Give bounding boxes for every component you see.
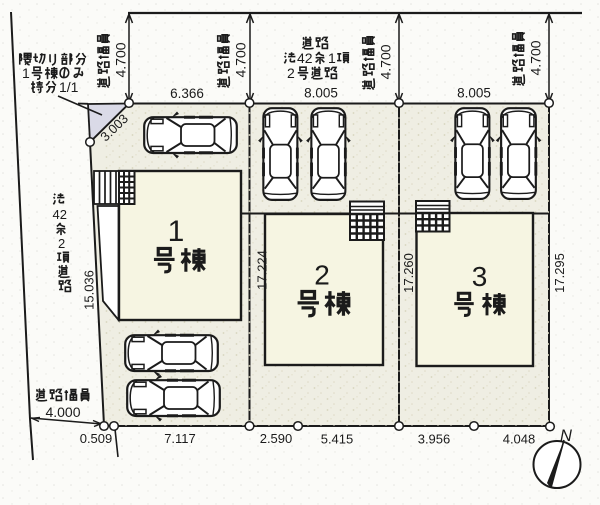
svg-text:42: 42 (297, 50, 313, 66)
svg-text:8.005: 8.005 (457, 86, 491, 101)
svg-text:7.117: 7.117 (164, 431, 196, 446)
svg-text:15.036: 15.036 (82, 270, 97, 310)
svg-text:4.700: 4.700 (378, 44, 394, 79)
svg-text:3: 3 (472, 261, 488, 292)
svg-text:2.590: 2.590 (260, 431, 293, 446)
svg-text:N: N (560, 427, 572, 445)
svg-text:1/1: 1/1 (59, 79, 79, 95)
svg-text:1: 1 (328, 50, 336, 66)
svg-text:1: 1 (168, 215, 185, 248)
svg-text:17.260: 17.260 (401, 253, 416, 293)
svg-text:4.700: 4.700 (528, 40, 544, 75)
svg-text:0.509: 0.509 (80, 431, 113, 446)
svg-text:17.224: 17.224 (255, 250, 270, 290)
svg-text:2: 2 (287, 65, 295, 81)
svg-text:3.956: 3.956 (418, 432, 451, 447)
svg-text:4.000: 4.000 (45, 404, 80, 420)
svg-text:5.415: 5.415 (321, 432, 354, 447)
svg-text:42: 42 (53, 207, 67, 222)
svg-text:2: 2 (58, 236, 65, 251)
svg-text:2: 2 (314, 260, 330, 291)
svg-text:4.700: 4.700 (113, 42, 129, 77)
svg-text:4.048: 4.048 (503, 432, 536, 447)
svg-text:17.295: 17.295 (552, 253, 567, 293)
svg-text:1: 1 (22, 65, 30, 81)
svg-text:6.366: 6.366 (170, 86, 204, 101)
svg-text:8.005: 8.005 (304, 86, 338, 101)
svg-text:4.700: 4.700 (233, 42, 249, 77)
